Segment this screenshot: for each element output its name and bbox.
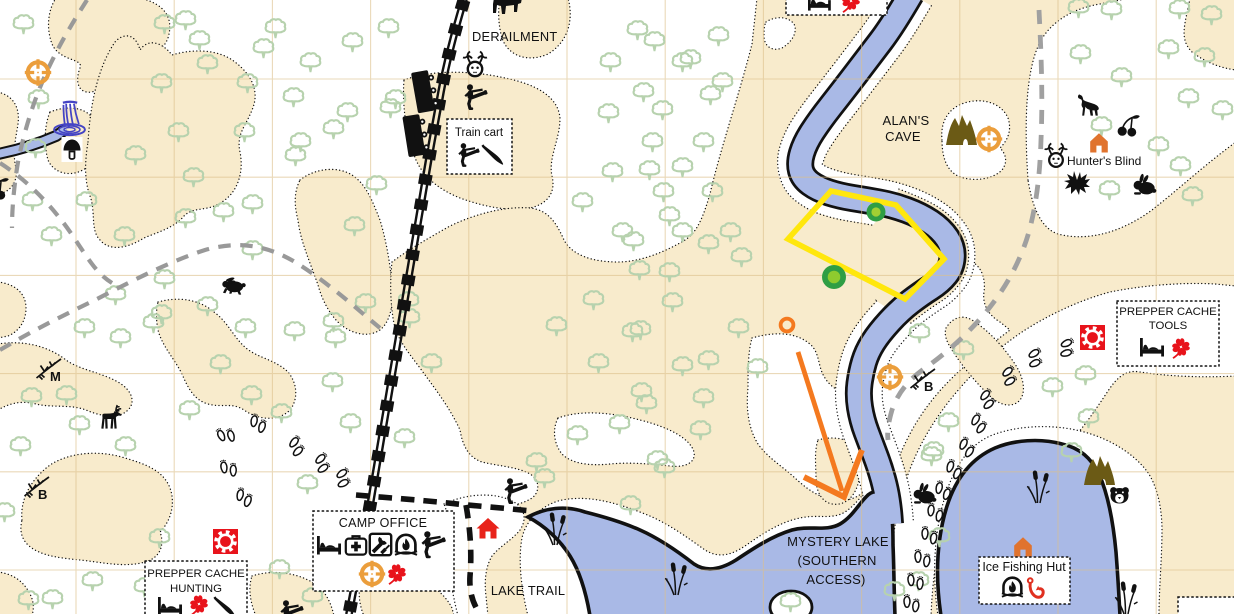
svg-text:CAMP OFFICE: CAMP OFFICE	[339, 516, 428, 530]
svg-text:M: M	[50, 369, 61, 384]
svg-text:Train cart: Train cart	[455, 127, 504, 139]
svg-text:B: B	[38, 487, 47, 502]
svg-text:B: B	[924, 379, 933, 394]
svg-text:DERAILMENT: DERAILMENT	[472, 29, 557, 44]
svg-text:PREPPER CACHE: PREPPER CACHE	[147, 568, 245, 580]
svg-text:CAVE: CAVE	[885, 129, 921, 144]
svg-text:Ice Fishing Hut: Ice Fishing Hut	[982, 560, 1066, 574]
svg-text:Hunter's Blind: Hunter's Blind	[1067, 154, 1141, 168]
svg-text:HUNTING: HUNTING	[170, 583, 222, 595]
svg-text:MYSTERY LAKE: MYSTERY LAKE	[787, 534, 889, 549]
svg-text:TOOLS: TOOLS	[1149, 320, 1188, 332]
svg-text:PREPPER CACHE: PREPPER CACHE	[1119, 306, 1217, 318]
svg-text:ACCESS): ACCESS)	[806, 572, 865, 587]
svg-text:(SOUTHERN: (SOUTHERN	[797, 553, 876, 568]
svg-text:LAKE TRAIL: LAKE TRAIL	[491, 583, 565, 598]
svg-text:ALAN'S: ALAN'S	[883, 113, 930, 128]
